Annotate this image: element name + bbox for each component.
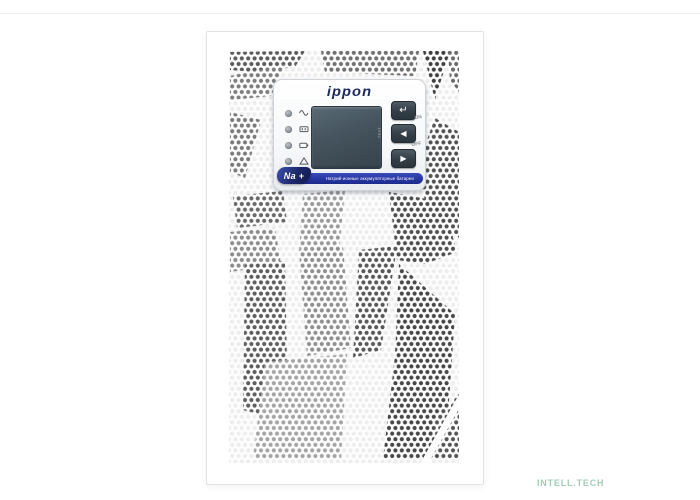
led-dot [285, 110, 292, 117]
off-label: OFF [411, 140, 422, 147]
brand-logo: ippon [270, 83, 429, 99]
control-panel: ippon [273, 79, 426, 191]
led-dot [285, 158, 292, 165]
product-photo-canvas: ippon [0, 0, 700, 500]
led-dot [285, 126, 292, 133]
scroll-left-button: ◀ [391, 124, 416, 143]
warning-triangle-icon [299, 157, 309, 165]
na-plus-badge: Na + [277, 167, 311, 184]
banner-text: Натрий-ионные аккумуляторные батареи [317, 175, 423, 181]
left-triangle-icon: ◀ [400, 130, 406, 138]
ups-device: ippon [206, 31, 484, 485]
page-divider-line [0, 13, 700, 14]
test-label: TEST [369, 124, 389, 141]
enter-icon: ↵ [399, 106, 407, 116]
watermark: INTELL.TECH [537, 478, 604, 488]
led-dot [285, 142, 292, 149]
sine-wave-icon [299, 109, 309, 117]
on-label: ON [414, 114, 422, 121]
enter-button: ↵ [391, 101, 416, 120]
battery-terminals-icon [299, 125, 309, 133]
battery-icon [299, 141, 309, 149]
right-triangle-icon: ▶ [400, 155, 406, 163]
scroll-right-button: ▶ [391, 149, 416, 168]
